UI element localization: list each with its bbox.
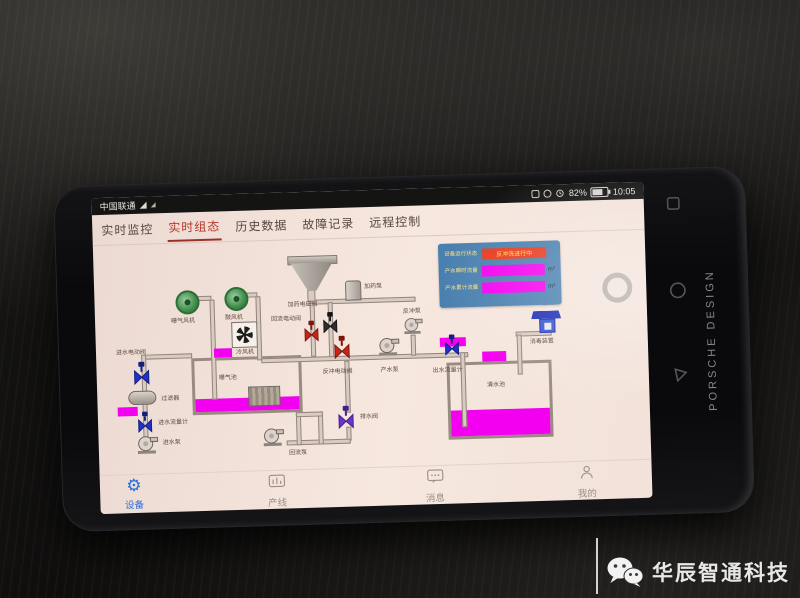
tab-history-data[interactable]: 历史数据 xyxy=(234,212,289,239)
tab-fault-record[interactable]: 故障记录 xyxy=(301,210,356,237)
pipe xyxy=(261,352,468,363)
watermark: 华辰智通科技 xyxy=(606,556,790,588)
panel-status-label: 设备运行状态 xyxy=(444,251,482,258)
aeration-tank-label: 曝气池 xyxy=(219,375,237,382)
aeration-blower xyxy=(175,290,200,315)
battery-icon xyxy=(591,186,609,197)
photo-scene: 中国联通 82% 10:05 实时监控 xyxy=(0,0,800,598)
nfc-icon xyxy=(544,189,552,197)
backwash-pump-label: 反冲泵 xyxy=(403,308,421,315)
backwash-valve-label: 反冲电动阀 xyxy=(323,369,353,376)
outlet-flowmeter-label: 出水流量计 xyxy=(433,367,463,374)
clean-tank-label: 清水池 xyxy=(487,382,505,389)
drain-valve-device xyxy=(338,405,355,434)
panel-total-flow-label: 产水累计流量 xyxy=(445,285,482,292)
panel-total-flow-unit: m³ xyxy=(548,283,555,289)
inlet-electric-valve xyxy=(133,361,150,390)
message-icon xyxy=(426,469,443,484)
pipe xyxy=(517,335,523,375)
aeration-tank xyxy=(191,355,303,415)
wechat-icon xyxy=(606,556,644,588)
watermark-line xyxy=(596,538,598,594)
phone-screen: 中国联通 82% 10:05 实时监控 xyxy=(91,182,652,514)
nav-production-label: 产线 xyxy=(253,494,301,509)
return-pump-device xyxy=(260,427,285,453)
nav-item-messages[interactable]: 消息 xyxy=(411,468,460,504)
tab-realtime-monitor[interactable]: 实时监控 xyxy=(100,216,155,243)
panel-status-value: 反冲洗进行中 xyxy=(482,247,546,260)
disinfector-label: 消毒装置 xyxy=(530,339,554,346)
panel-instant-flow-value xyxy=(482,264,545,277)
inlet-pump-device xyxy=(134,434,159,460)
status-info-panel: 设备运行状态 反冲洗进行中 产水瞬时流量 m³ 产水累计流量 m³ xyxy=(438,240,562,308)
filter-label: 过滤器 xyxy=(161,396,179,403)
backwash-pump-device xyxy=(401,316,424,340)
dosing-pump xyxy=(345,280,362,300)
panel-row-status: 设备运行状态 反冲洗进行中 xyxy=(444,247,554,261)
recents-button[interactable] xyxy=(666,196,682,216)
disinfector-body xyxy=(539,319,555,333)
nav-item-production-line[interactable]: 产线 xyxy=(253,473,302,509)
nav-device-label: 设备 xyxy=(110,496,158,511)
phone: 中国联通 82% 10:05 实时监控 xyxy=(53,166,755,532)
signal-icon xyxy=(140,202,147,209)
inlet-pump-label: 进水泵 xyxy=(163,440,181,447)
fan-icon xyxy=(233,323,256,346)
return-pump-label: 回流泵 xyxy=(289,450,307,457)
filter-device xyxy=(128,390,156,405)
gear-icon: ⚙ xyxy=(126,476,142,496)
pipe xyxy=(309,297,415,305)
outlet-flowmeter-device xyxy=(444,333,461,360)
blower1-label: 曝气风机 xyxy=(171,318,195,325)
inlet-flow-indicator xyxy=(118,407,138,417)
inlet-flowmeter-label: 进水流量计 xyxy=(158,419,188,426)
blower xyxy=(224,287,249,312)
membrane-module xyxy=(248,386,281,407)
back-button[interactable] xyxy=(671,368,689,389)
product-pump-label: 产水泵 xyxy=(381,367,399,374)
fan-label: 冷风机 xyxy=(236,349,254,356)
tab-remote-control[interactable]: 远程控制 xyxy=(368,208,423,235)
pipe xyxy=(144,353,192,359)
clock-time: 10:05 xyxy=(613,186,636,197)
blower2-label: 鼓风机 xyxy=(225,315,243,322)
carrier-label: 中国联通 xyxy=(99,199,135,213)
nav-messages-label: 消息 xyxy=(411,489,459,504)
fan-unit xyxy=(231,321,258,348)
panel-instant-flow-unit: m³ xyxy=(548,266,555,272)
pipe xyxy=(307,290,315,302)
product-pump-device xyxy=(376,336,401,362)
panel-row-instant-flow: 产水瞬时流量 m³ xyxy=(445,263,555,277)
clean-tank-level-indicator xyxy=(482,351,506,362)
panel-total-flow-value xyxy=(482,281,545,294)
hopper-body xyxy=(290,262,333,291)
drain-valve-label: 排水阀 xyxy=(360,414,378,421)
home-button[interactable] xyxy=(668,281,688,306)
battery-percent: 82% xyxy=(569,187,587,198)
signal2-icon xyxy=(151,202,156,207)
status-left: 中国联通 xyxy=(99,198,155,213)
alarm-icon xyxy=(556,188,565,197)
backwash-electric-valve xyxy=(334,335,351,364)
nav-profile-label: 我的 xyxy=(563,485,611,500)
aeration-level-indicator xyxy=(214,348,232,358)
return-valve-label: 回流电动阀 xyxy=(271,316,301,323)
return-electric-valve xyxy=(303,320,320,347)
pipe xyxy=(296,411,323,417)
production-line-icon xyxy=(268,474,286,490)
inlet-valve-label: 进水电动阀 xyxy=(116,350,146,357)
panel-row-total-flow: 产水累计流量 m³ xyxy=(445,280,555,294)
nav-item-profile[interactable]: 我的 xyxy=(563,464,612,500)
status-right: 82% 10:05 xyxy=(532,186,636,199)
watermark-text: 华辰智通科技 xyxy=(652,557,790,587)
nav-item-device[interactable]: ⚙ 设备 xyxy=(110,477,159,511)
power-saving-icon xyxy=(532,189,540,197)
scada-canvas: 曝气风机 鼓风机 冷风机 加药泵 加药电磁阀 回流电动阀 反冲泵 反冲电动阀 产… xyxy=(93,230,652,475)
tab-realtime-mimic[interactable]: 实时组态 xyxy=(167,213,222,242)
dosing-valve-label: 加药电磁阀 xyxy=(288,302,318,309)
person-icon xyxy=(579,464,595,479)
dosing-pump-label: 加药泵 xyxy=(364,284,382,291)
panel-instant-flow-label: 产水瞬时流量 xyxy=(445,268,482,275)
